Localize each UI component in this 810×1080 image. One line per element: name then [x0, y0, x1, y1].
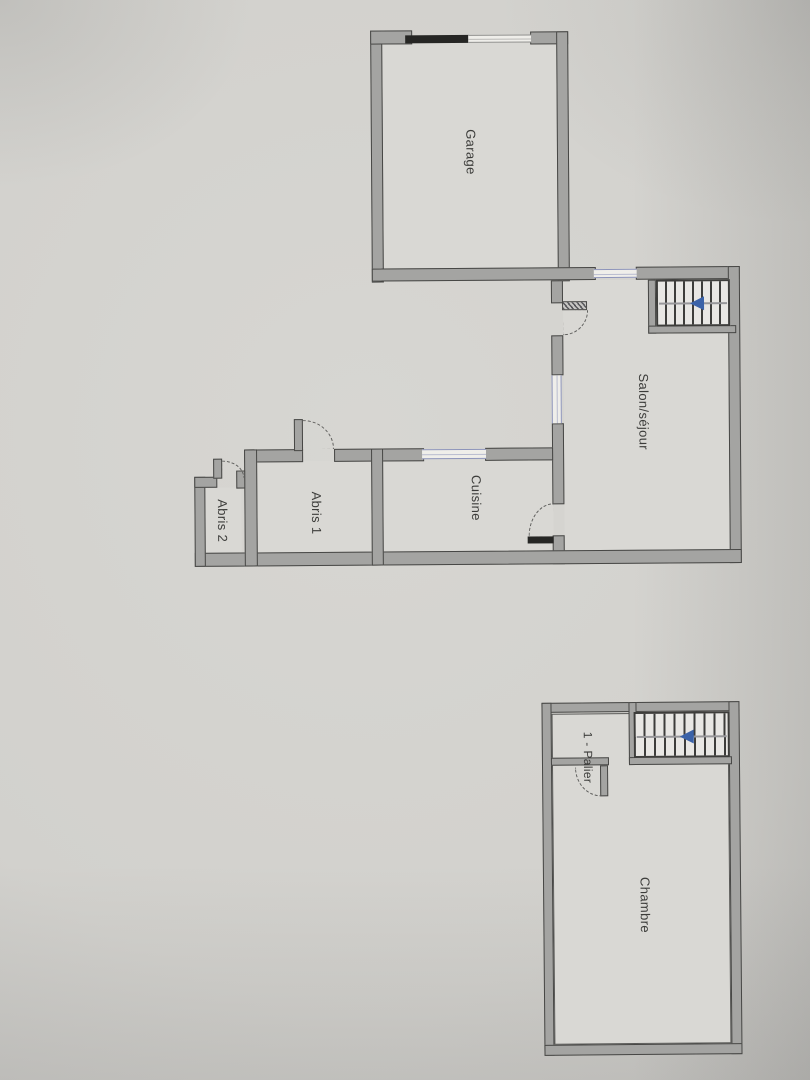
floor-plan-photo: Garage Salon/séjour Cuisine Abris 1 Abri…	[0, 0, 810, 1080]
chambre-bottom-wall	[544, 1043, 742, 1056]
first-floor-stairs	[634, 711, 730, 758]
stairs-direction-arrow-icon	[680, 730, 694, 744]
chambre-label: Chambre	[637, 877, 652, 933]
chambre-right-wall	[728, 701, 742, 1054]
first-floor-plan: 1 - Palier Chambre	[0, 0, 810, 1080]
palier-label: 1 - Palier	[581, 732, 595, 784]
